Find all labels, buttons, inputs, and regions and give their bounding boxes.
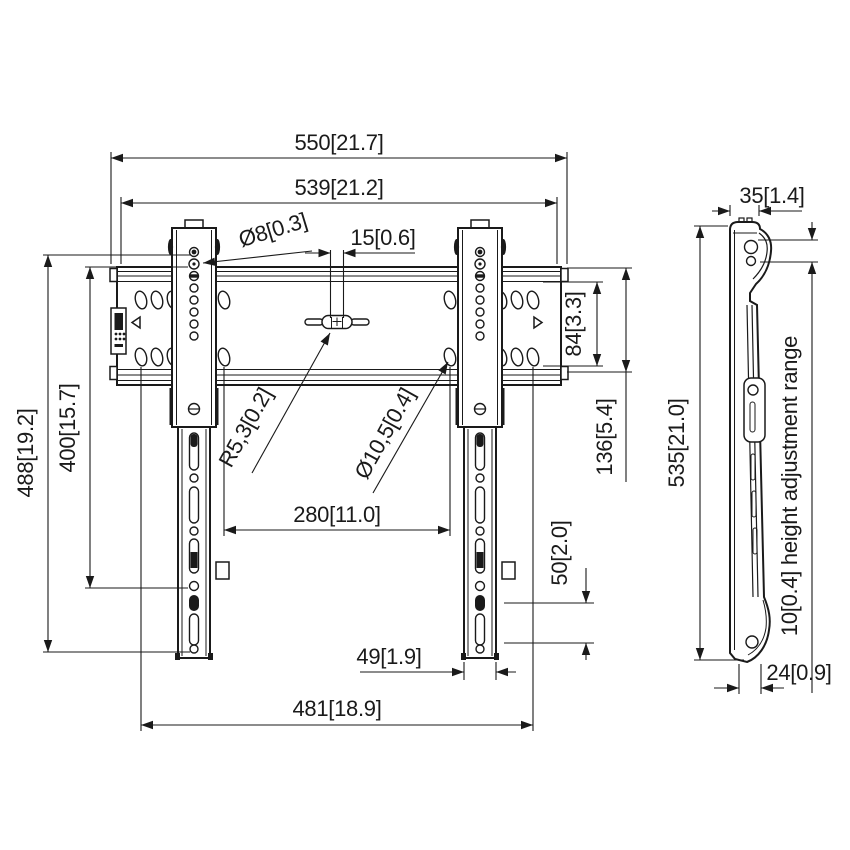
hook-screw xyxy=(745,241,758,254)
dim-inner-slot-span: 280[11.0] xyxy=(293,502,380,527)
dim-lower-hole-gap: 50[2.0] xyxy=(547,520,572,585)
dim-slot-radius: R5,3[0.2] xyxy=(214,383,278,471)
dim-height-adjustment-range: 10[0.4] height adjustment range xyxy=(777,336,802,636)
dim-vesa-span: 400[15.7] xyxy=(55,383,80,472)
dim-rail-height: 136[5.4] xyxy=(592,398,617,475)
dim-strap-width: 49[1.9] xyxy=(356,644,421,669)
dimension-lines xyxy=(43,152,818,731)
dim-bottom-depth: 24[0.9] xyxy=(766,660,831,685)
technical-drawing-page: 550[21.7] 539[21.2] Ø8[0.3] 15[0.6] 84[3… xyxy=(0,0,850,850)
dim-slot-row-gap: 84[3.3] xyxy=(561,291,586,356)
dim-screw-hole-diameter: Ø8[0.3] xyxy=(236,208,310,252)
dim-total-height: 535[21.0] xyxy=(664,398,689,487)
dim-inner-width: 539[21.2] xyxy=(294,175,383,200)
dim-outer-slot-span: 481[18.9] xyxy=(292,696,381,721)
dim-max-hole-span: 488[19.2] xyxy=(13,408,38,497)
wall-mount-dimension-drawing: 550[21.7] 539[21.2] Ø8[0.3] 15[0.6] 84[3… xyxy=(0,0,850,850)
dim-top-depth: 35[1.4] xyxy=(739,183,804,208)
rail-end-cap xyxy=(110,367,117,380)
dim-wall-slot-diameter: Ø10,5[0.4] xyxy=(349,384,419,483)
brand-sticker xyxy=(111,308,126,354)
rail-end-cap xyxy=(561,269,568,282)
side-view xyxy=(730,218,771,662)
front-view xyxy=(110,220,568,660)
rail-end-cap xyxy=(561,367,568,380)
dim-outer-width: 550[21.7] xyxy=(294,130,383,155)
dim-center-slot-width: 15[0.6] xyxy=(350,225,415,250)
dimension-labels: 550[21.7] 539[21.2] Ø8[0.3] 15[0.6] 84[3… xyxy=(13,130,832,721)
rail-end-cap xyxy=(110,269,117,282)
bottom-screw xyxy=(746,636,758,648)
